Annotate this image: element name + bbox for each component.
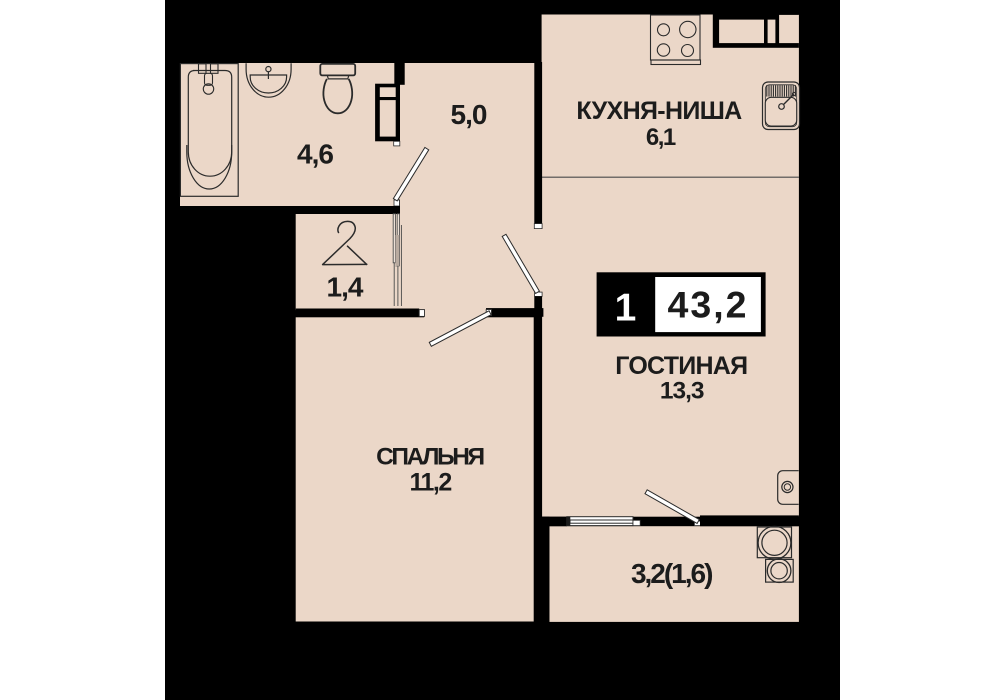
svg-text:ГОСТИНАЯ: ГОСТИНАЯ [615,352,747,380]
svg-text:1: 1 [615,287,637,330]
svg-text:5,0: 5,0 [451,99,487,130]
svg-text:КУХНЯ-НИША: КУХНЯ-НИША [576,97,742,125]
svg-text:СПАЛЬНЯ: СПАЛЬНЯ [376,443,483,470]
svg-text:3,2(1,6): 3,2(1,6) [631,558,712,589]
svg-text:13,3: 13,3 [660,378,704,405]
svg-text:43,2: 43,2 [668,284,749,326]
svg-text:4,6: 4,6 [297,138,333,169]
svg-text:1,4: 1,4 [327,272,364,303]
svg-text:11,2: 11,2 [409,468,451,496]
svg-text:6,1: 6,1 [646,124,676,151]
